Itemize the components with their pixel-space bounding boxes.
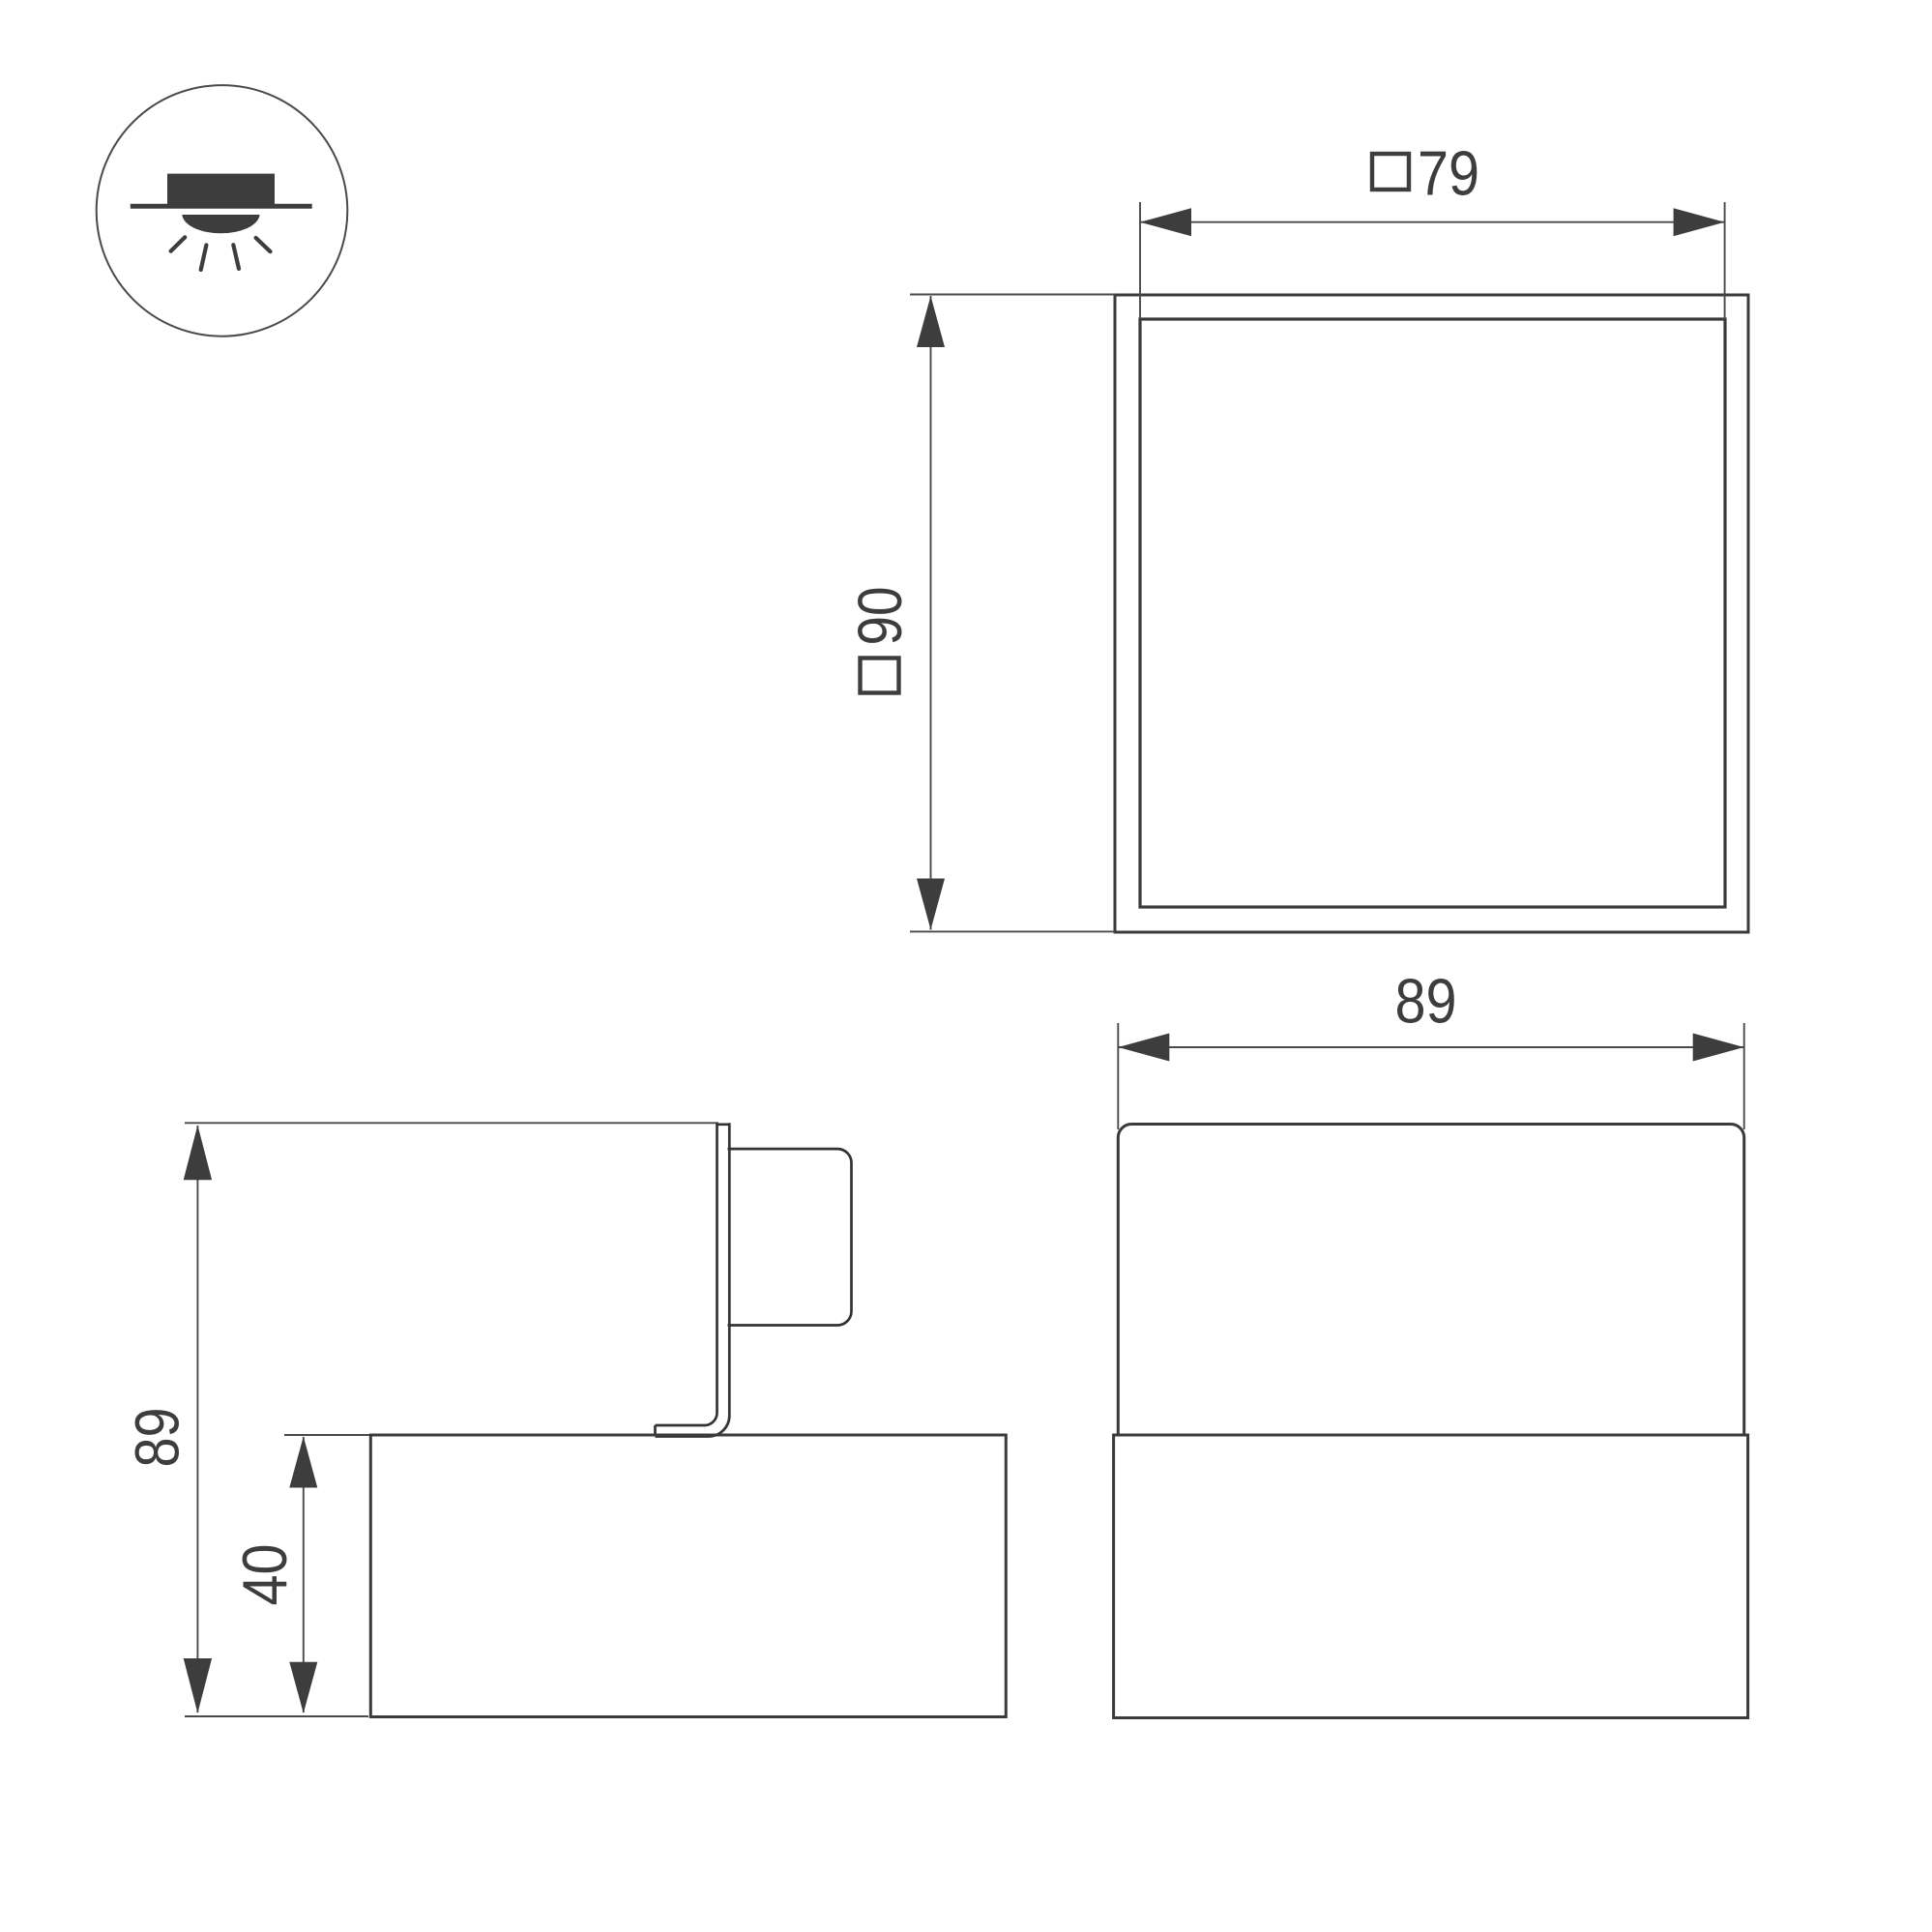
svg-text:90: 90	[845, 587, 915, 646]
svg-text:89: 89	[1395, 966, 1457, 1037]
svg-text:79: 79	[1418, 138, 1479, 209]
svg-text:89: 89	[123, 1408, 192, 1468]
svg-text:40: 40	[229, 1544, 300, 1606]
